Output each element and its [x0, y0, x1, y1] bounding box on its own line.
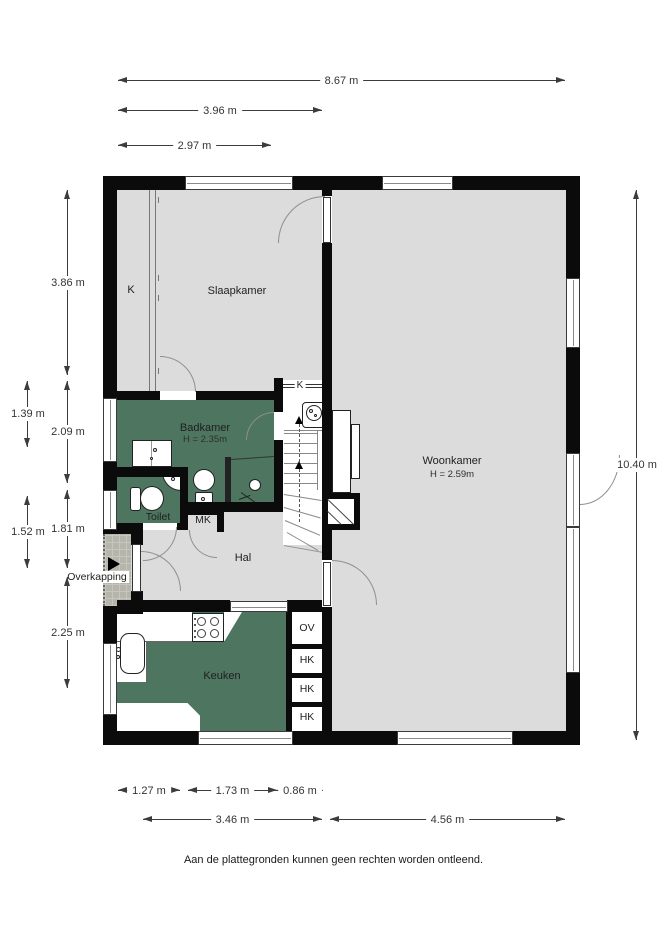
shower-head-icon	[249, 479, 261, 491]
dimension: 3.86 m	[67, 190, 68, 375]
kitchen-sink-icon	[120, 633, 145, 674]
sink-tap-icon	[153, 448, 157, 452]
divider-tick	[158, 368, 159, 374]
door-leaf	[323, 562, 331, 606]
window	[566, 278, 580, 348]
wall	[566, 176, 580, 278]
stove-knob	[194, 636, 196, 638]
window	[382, 176, 453, 190]
boiler-dot	[314, 414, 317, 417]
wall	[453, 176, 580, 190]
stove-icon	[192, 613, 224, 642]
window	[103, 398, 117, 462]
counter-edge-line	[146, 642, 147, 682]
dimension: 1.39 m	[27, 381, 28, 447]
wall	[131, 528, 143, 545]
wall	[117, 391, 160, 400]
dimension: 1.81 m	[67, 490, 68, 568]
stove-burner-icon	[210, 617, 219, 626]
room-label-badkamer: Badkamer	[180, 422, 230, 434]
sink-cabinet-line	[151, 441, 152, 466]
room-label-overkapping: Overkapping	[65, 571, 129, 583]
wall	[322, 607, 332, 731]
stove-knob	[194, 624, 196, 626]
window	[185, 176, 293, 190]
wall	[566, 348, 580, 453]
divider-tick	[158, 275, 159, 281]
window	[103, 490, 117, 530]
window	[198, 731, 293, 745]
shower-wall	[225, 457, 231, 507]
dimension: 1.52 m	[27, 496, 28, 568]
closet-label-hk: HK	[300, 654, 315, 666]
dimension: 3.96 m	[118, 110, 322, 111]
wall	[217, 508, 224, 532]
stove-knob	[194, 630, 196, 632]
dimension: 8.67 m	[118, 80, 565, 81]
dimension: 2.09 m	[67, 381, 68, 483]
wc-flush-dot	[201, 497, 205, 501]
dimension-label: 10.40 m	[614, 458, 660, 472]
exterior-door-opening	[566, 453, 580, 527]
stove-burner-icon	[197, 617, 206, 626]
wardrobe-divider-line	[149, 190, 150, 391]
wall	[177, 523, 188, 530]
wall	[274, 378, 283, 412]
door-opening	[274, 412, 283, 440]
wall	[103, 176, 117, 398]
stair-flight-edge	[317, 430, 318, 490]
stair-tread	[284, 483, 317, 484]
dimension: 3.46 m	[143, 819, 322, 820]
stair-tread	[284, 473, 317, 474]
dimension-label: 3.86 m	[48, 276, 88, 290]
room-height-badkamer: H = 2.35m	[183, 434, 227, 445]
dimension-label: 1.39 m	[8, 407, 48, 421]
dimension-label: 3.46 m	[211, 814, 255, 826]
stove-knob	[194, 618, 196, 620]
wall	[322, 243, 332, 493]
wall	[196, 391, 274, 400]
dimension-label: 4.56 m	[426, 814, 470, 826]
stove-burner-icon	[197, 629, 206, 638]
dimension: 1.27 m	[118, 790, 180, 791]
dimension-label: 1.81 m	[48, 522, 88, 536]
toilet-bowl-icon	[140, 486, 164, 511]
room-label-toilet: Toilet	[146, 511, 171, 523]
dimension: 2.25 m	[67, 577, 68, 688]
dimension-label: 3.96 m	[198, 105, 242, 117]
door-opening	[160, 391, 196, 400]
dimension-label: 2.09 m	[48, 425, 88, 439]
boiler-drum-icon	[306, 405, 322, 421]
dimension-label: 0.86 m	[278, 785, 322, 797]
room-label-mk: MK	[195, 514, 211, 526]
wall	[293, 731, 397, 745]
floor-plan: OV HK HK HK K Slaapkamer Woonkamer H = 2…	[0, 0, 667, 944]
divider-tick	[158, 197, 159, 203]
front-door-leaf	[132, 544, 141, 592]
closet-label-hk: HK	[300, 683, 315, 695]
stove-burner-icon	[210, 629, 219, 638]
window	[397, 731, 513, 745]
stair-tread	[284, 453, 317, 454]
wall	[513, 731, 580, 745]
wall	[292, 702, 322, 707]
dimension-label: 1.73 m	[211, 785, 255, 797]
stair-walkline	[299, 424, 300, 522]
livingroom-cabinet-icon	[332, 410, 351, 493]
serving-hatch	[230, 601, 288, 612]
divider-tick	[158, 295, 159, 301]
wall	[103, 462, 117, 490]
room-label-k-wardrobe: K	[127, 284, 134, 296]
wall	[131, 591, 143, 614]
wardrobe-divider-line	[155, 190, 156, 391]
closet-label-k-stair: K	[295, 380, 306, 391]
room-label-hal: Hal	[235, 552, 252, 564]
dimension-label: 8.67 m	[320, 75, 364, 87]
basin-tap-icon	[171, 477, 175, 481]
stair-up-arrow-icon	[295, 461, 303, 469]
wall	[180, 467, 188, 530]
wall	[293, 176, 382, 190]
dimension-label: 2.97 m	[173, 140, 217, 152]
room-label-slaapkamer: Slaapkamer	[208, 285, 267, 297]
bathroom-wc-icon	[193, 469, 215, 491]
window	[566, 527, 580, 673]
room-height-woonkamer: H = 2.59m	[430, 469, 474, 480]
room-label-woonkamer: Woonkamer	[422, 455, 481, 467]
wall	[103, 612, 117, 643]
wall	[103, 606, 131, 614]
window	[103, 643, 117, 715]
bathroom-sink-cabinet-icon	[132, 440, 172, 467]
wall	[292, 644, 322, 649]
kitchen-floor-notch	[117, 703, 200, 731]
wall	[322, 530, 332, 560]
dimension: 4.56 m	[330, 819, 565, 820]
closet-label-ov: OV	[299, 622, 314, 634]
dimension: 1.73 m	[188, 790, 277, 791]
stair-tread	[284, 433, 317, 434]
dimension-label: 1.52 m	[8, 525, 48, 539]
wall	[103, 731, 198, 745]
dimension-label: 1.27 m	[127, 785, 171, 797]
dimension: 2.97 m	[118, 145, 271, 146]
wall	[292, 673, 322, 678]
dimension: 10.40 m	[636, 190, 637, 740]
dimension-label: 2.25 m	[48, 626, 88, 640]
closet-label-hk: HK	[300, 711, 315, 723]
livingroom-cabinet-icon	[351, 424, 360, 479]
boiler-dot	[309, 409, 313, 413]
stair-tread	[284, 443, 317, 444]
wall	[117, 467, 187, 477]
entrance-arrow-icon	[108, 557, 120, 571]
room-label-keuken: Keuken	[203, 670, 240, 682]
sink-tap-icon	[150, 457, 153, 460]
dimension: 0.86 m	[277, 790, 323, 791]
disclaimer-text: Aan de plattegronden kunnen geen rechten…	[0, 854, 667, 866]
